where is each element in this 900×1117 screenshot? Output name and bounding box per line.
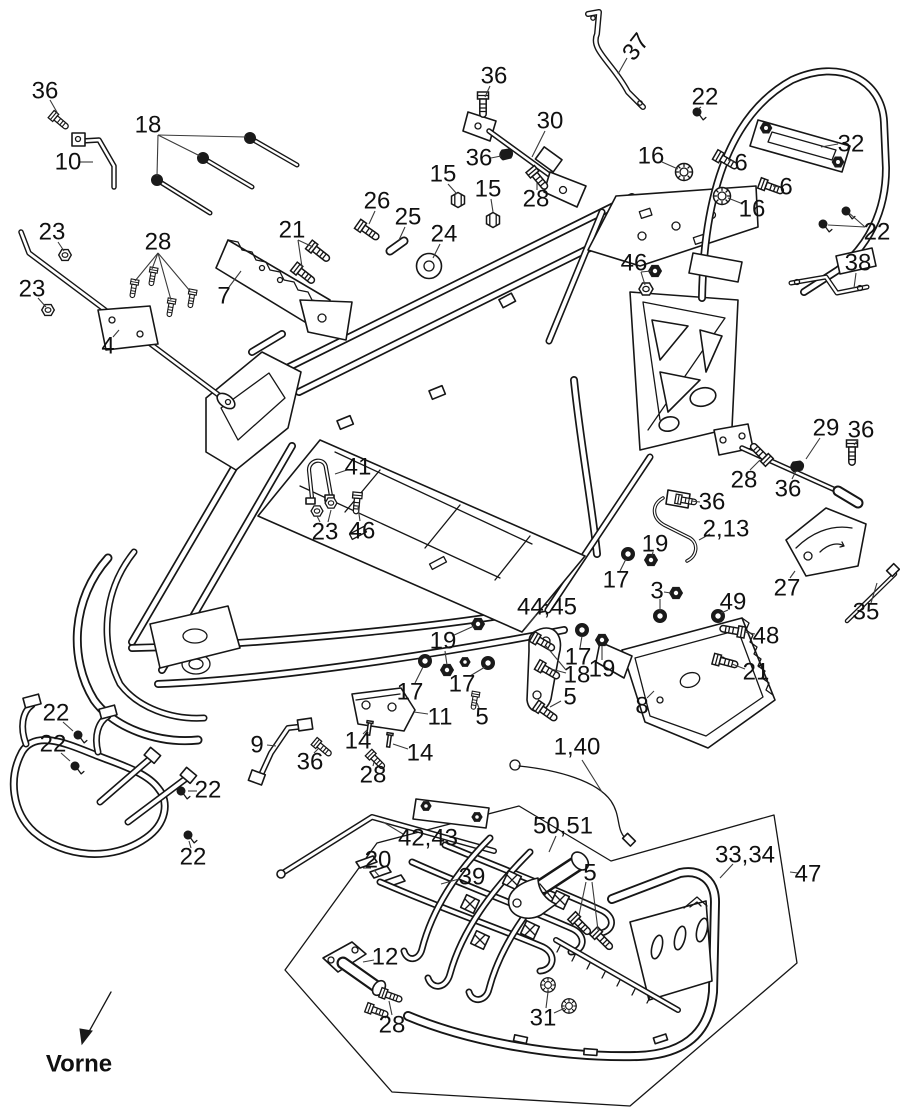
part-label-37: 37	[617, 28, 655, 66]
leader-line	[582, 760, 602, 792]
part-label-36: 36	[466, 145, 493, 172]
part-label-21: 21	[743, 659, 770, 686]
part-label-46: 46	[621, 250, 648, 277]
part-label-41: 41	[345, 454, 372, 481]
stabilizer-bar-4	[21, 232, 238, 412]
part-label-17: 17	[397, 679, 424, 706]
part-label-23: 23	[19, 276, 46, 303]
leader-line	[550, 701, 561, 707]
leader-line	[662, 162, 678, 169]
part-label-2-13: 2,13	[703, 516, 750, 543]
part-label-29: 29	[813, 415, 840, 442]
part-label-20: 20	[365, 847, 392, 874]
part-label-36: 36	[32, 78, 59, 105]
part-label-19: 19	[430, 628, 457, 655]
leader-line	[414, 712, 428, 714]
part-label-19: 19	[642, 531, 669, 558]
part-label-5: 5	[563, 684, 576, 711]
part-label-28: 28	[145, 229, 172, 256]
part-label-46: 46	[349, 518, 376, 545]
part-label-30: 30	[537, 108, 564, 135]
part-label-36: 36	[699, 489, 726, 516]
part-label-28: 28	[360, 762, 387, 789]
part-label-23: 23	[312, 519, 339, 546]
part-label-8: 8	[635, 693, 648, 720]
leader-line	[828, 225, 865, 227]
part-label-32: 32	[838, 131, 865, 158]
part-label-28: 28	[731, 467, 758, 494]
leader-line	[158, 135, 200, 156]
part-label-14: 14	[345, 728, 372, 755]
part-label-35: 35	[853, 599, 880, 626]
part-label-10: 10	[55, 149, 82, 176]
leader-line	[157, 135, 158, 176]
part-label-17: 17	[449, 671, 476, 698]
part-label-22: 22	[195, 777, 222, 804]
leader-line	[491, 156, 501, 158]
part-label-36: 36	[481, 63, 508, 90]
leader-line	[618, 58, 627, 74]
part-label-28: 28	[523, 186, 550, 213]
part-label-21: 21	[279, 217, 306, 244]
part-label-18: 18	[135, 112, 162, 139]
part-label-9: 9	[250, 732, 263, 759]
part-label-25: 25	[395, 204, 422, 231]
part-label-5: 5	[583, 860, 596, 887]
part-label-26: 26	[364, 188, 391, 215]
part-label-22: 22	[864, 219, 891, 246]
direction-label: Vorne	[46, 1051, 112, 1078]
part-label-44-45: 44,45	[517, 594, 577, 621]
part-label-6: 6	[734, 150, 747, 177]
part-label-50-51: 50,51	[533, 813, 593, 840]
part-label-16: 16	[638, 143, 665, 170]
part-label-38: 38	[845, 250, 872, 277]
part-label-39: 39	[459, 864, 486, 891]
part-label-19: 19	[589, 656, 616, 683]
leader-line	[158, 135, 246, 137]
part-label-15: 15	[430, 161, 457, 188]
part-label-36: 36	[775, 476, 802, 503]
part-label-4: 4	[101, 333, 114, 360]
part-label-22: 22	[692, 84, 719, 111]
parts-diagram-page: Vorne 3610182323287212625241515363730362…	[0, 0, 900, 1117]
footrest-bar-7	[216, 240, 352, 340]
part-label-28: 28	[379, 1012, 406, 1039]
part-label-23: 23	[39, 219, 66, 246]
part-label-6: 6	[779, 174, 792, 201]
part-label-16: 16	[739, 196, 766, 223]
part-label-22: 22	[43, 700, 70, 727]
part-label-7: 7	[217, 283, 230, 310]
leader-line	[849, 213, 865, 227]
part-label-24: 24	[431, 221, 458, 248]
part-label-1-40: 1,40	[554, 734, 601, 761]
part-label-15: 15	[475, 176, 502, 203]
part-label-3: 3	[650, 578, 663, 605]
part-label-22: 22	[180, 844, 207, 871]
part-label-49: 49	[720, 589, 747, 616]
part-label-48: 48	[753, 623, 780, 650]
part-label-5: 5	[475, 704, 488, 731]
owners-manual-pouch-27	[786, 508, 866, 576]
part-label-14: 14	[407, 740, 434, 767]
part-label-33-34: 33,34	[715, 842, 775, 869]
direction-indicator: Vorne	[46, 992, 112, 1078]
long-bolts-18	[152, 133, 298, 214]
part-label-17: 17	[603, 567, 630, 594]
part-label-42-43: 42,43	[398, 825, 458, 852]
part-label-11: 11	[428, 704, 453, 731]
part-label-47: 47	[795, 861, 822, 888]
part-label-27: 27	[774, 575, 801, 602]
exploded-parts-diagram: Vorne 3610182323287212625241515363730362…	[0, 0, 900, 1117]
part-label-36: 36	[848, 417, 875, 444]
part-label-31: 31	[530, 1005, 557, 1032]
part-label-22: 22	[40, 731, 67, 758]
part-label-36: 36	[297, 749, 324, 776]
part-label-12: 12	[372, 944, 399, 971]
